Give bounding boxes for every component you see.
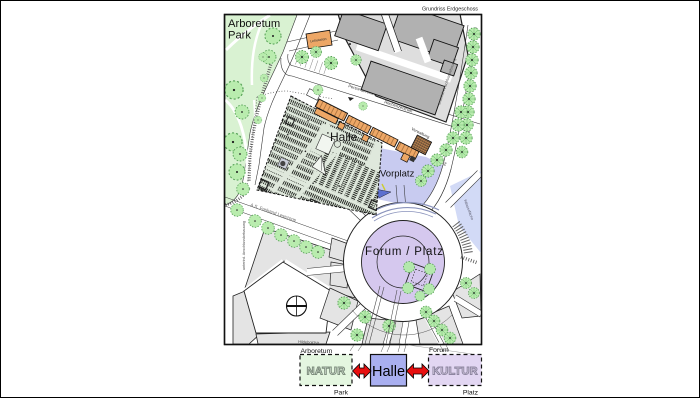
svg-text:Halle: Halle bbox=[372, 364, 405, 380]
svg-text:Park: Park bbox=[334, 390, 349, 397]
svg-text:Halle: Halle bbox=[330, 130, 358, 144]
svg-text:Vorplatz: Vorplatz bbox=[380, 169, 415, 180]
svg-text:Forum: Forum bbox=[429, 347, 449, 354]
svg-text:KULTUR: KULTUR bbox=[432, 366, 478, 378]
svg-text:NATUR: NATUR bbox=[307, 366, 346, 378]
svg-text:Grundriss Erdgeschoss: Grundriss Erdgeschoss bbox=[422, 7, 478, 13]
svg-text:Platz: Platz bbox=[463, 390, 479, 397]
svg-text:Arboretum: Arboretum bbox=[228, 18, 280, 30]
svg-text:Park: Park bbox=[228, 30, 251, 42]
svg-text:Forum / Platz: Forum / Platz bbox=[365, 246, 443, 258]
svg-text:unterird. Anschlussbebauung: unterird. Anschlussbebauung bbox=[242, 221, 246, 270]
svg-text:Arboretum: Arboretum bbox=[301, 348, 333, 355]
